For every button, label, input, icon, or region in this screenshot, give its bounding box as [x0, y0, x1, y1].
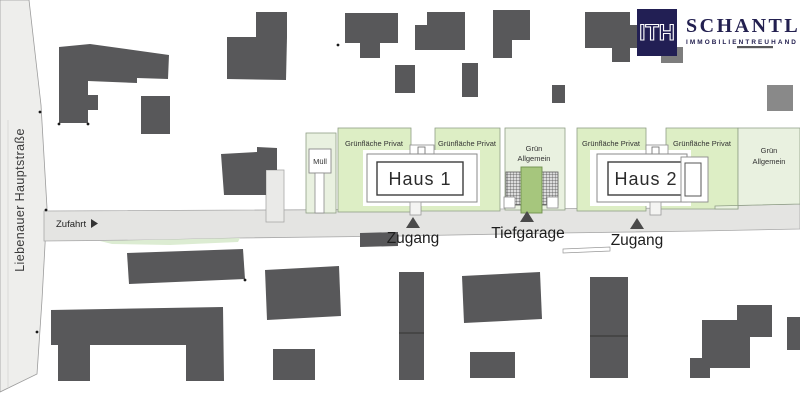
neighbor-building [462, 63, 478, 97]
survey-point [337, 44, 340, 47]
common-green-garage-label-line1: Grün [526, 144, 543, 153]
street-name-label: Liebenauer Hauptstraße [13, 128, 27, 272]
neighbor-building [399, 272, 424, 380]
neighbor-building [590, 277, 628, 378]
house2-label: Haus 2 [614, 169, 677, 189]
ith-logo-glyph: ITH [637, 9, 677, 56]
neighbor-building [787, 317, 800, 350]
path-corridor [266, 170, 284, 222]
private-green-label-1: Grünfläche Privat [345, 139, 404, 148]
neighbor-building [415, 12, 465, 50]
neighbor-building [493, 10, 530, 58]
waste-path [315, 173, 324, 213]
neighbor-building [127, 249, 245, 284]
survey-point [87, 123, 90, 126]
ith-logo-icon: ITH [637, 9, 677, 56]
neighbor-building [585, 12, 630, 62]
neighbor-building [141, 96, 170, 134]
neighbor-building [395, 65, 415, 93]
survey-point [45, 209, 48, 212]
entrance2-label: Zugang [611, 232, 664, 249]
access-label: Zufahrt [56, 219, 86, 230]
waste-label: Müll [313, 157, 327, 166]
brand-subtitle: IMMOBILIENTREUHAND [686, 39, 800, 46]
neighbor-building [690, 305, 772, 378]
neighbor-building [227, 37, 287, 80]
garage-ramp [521, 167, 542, 213]
site-plan: Liebenauer Hauptstraße Zufahrt Müll Grün… [0, 0, 800, 414]
brand-logo: ITH SCHANTL IMMOBILIENTREUHAND [637, 9, 800, 56]
garage-label: Tiefgarage [491, 225, 565, 242]
common-green-garage-label-line2: Allgemein [518, 154, 551, 163]
house1-access-path [410, 202, 421, 215]
house2-entrance-box [652, 147, 659, 154]
common-green-east-label-line2: Allgemein [753, 157, 786, 166]
neighbor-building [462, 272, 542, 323]
private-green-label-3: Grünfläche Privat [582, 139, 641, 148]
neighbor-building [345, 13, 398, 58]
neighbor-building [552, 85, 565, 103]
brand-logo-text: SCHANTL IMMOBILIENTREUHAND [686, 16, 800, 46]
private-green-label-2: Grünfläche Privat [438, 139, 497, 148]
survey-point [36, 331, 39, 334]
common-green-east-label-line1: Grün [761, 146, 778, 155]
garage-exit-west [504, 197, 515, 208]
house2-access-path [650, 202, 661, 215]
neighbor-building [51, 307, 224, 381]
logo-mark-text: ITH [639, 20, 674, 45]
house1-entrance-box [418, 147, 425, 154]
private-green-label-4: Grünfläche Privat [673, 139, 732, 148]
house1-label: Haus 1 [388, 169, 451, 189]
neighbor-building [265, 266, 341, 320]
neighbor-building [470, 352, 515, 378]
brand-name: SCHANTL [686, 16, 800, 36]
site-plan-screenshot: Liebenauer Hauptstraße Zufahrt Müll Grün… [0, 0, 800, 414]
entrance1-label: Zugang [387, 230, 440, 247]
neighbor-building [256, 12, 287, 37]
garage-exit-east [547, 197, 558, 208]
neighbor-building [273, 349, 315, 380]
survey-point [39, 111, 42, 114]
survey-point [244, 279, 247, 282]
retaining-wall [563, 247, 610, 253]
neighbor-building [767, 85, 793, 111]
house2-annex-inner [685, 163, 701, 196]
survey-point [58, 123, 61, 126]
